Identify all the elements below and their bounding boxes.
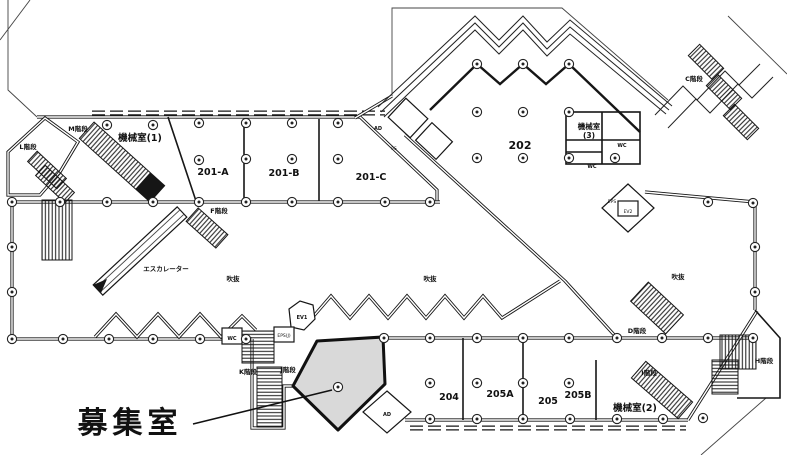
column-marker-dot <box>614 157 617 160</box>
stair-label-k: K階段 <box>239 367 258 376</box>
column-marker-dot <box>522 111 525 114</box>
column-marker-dot <box>569 418 572 421</box>
stair-label-i: I階段 <box>641 368 657 377</box>
column-marker-dot <box>152 338 155 341</box>
column-marker-dot <box>11 291 14 294</box>
atrium-label-1: 吹抜 <box>227 274 241 283</box>
column-marker-dot <box>568 382 571 385</box>
stair-l-lower-flight <box>42 200 72 260</box>
column-marker-dot <box>754 246 757 249</box>
floor-plan: 募集室 機械室(1) 201-A 201-B 201-C 202 機械室 (3)… <box>0 0 787 455</box>
wc-label-2: WC <box>587 164 597 170</box>
column-marker-dot <box>616 418 619 421</box>
column-marker-dot <box>702 417 705 420</box>
ps-label: PS <box>391 146 397 152</box>
column-marker-dot <box>62 338 65 341</box>
column-marker-dot <box>11 338 14 341</box>
column-marker-dot <box>291 201 294 204</box>
room-label-machine2: 機械室(2) <box>613 402 657 414</box>
room-label-204: 204 <box>439 392 459 403</box>
room-label-201a: 201-A <box>197 167 229 178</box>
column-marker-dot <box>476 382 479 385</box>
column-marker-dot <box>522 63 525 66</box>
column-marker-dot <box>245 158 248 161</box>
stair-label-m: M階段 <box>68 124 88 133</box>
room-label-machine3-num: (3) <box>583 131 595 140</box>
column-marker-dot <box>429 201 432 204</box>
column-marker-dot <box>429 337 432 340</box>
column-marker-dot <box>245 122 248 125</box>
column-marker-dot <box>752 202 755 205</box>
column-marker-dot <box>522 382 525 385</box>
column-marker-dot <box>707 337 710 340</box>
column-marker-dot <box>337 386 340 389</box>
ev2-label: EV2 <box>624 209 633 215</box>
column-marker-dot <box>245 338 248 341</box>
stair-label-l: L階段 <box>19 142 37 151</box>
column-marker-dot <box>662 418 665 421</box>
column-marker-dot <box>198 122 201 125</box>
room-label-201b: 201-B <box>268 168 299 179</box>
ev1-label: EV1 <box>297 315 308 321</box>
escalator <box>93 207 187 295</box>
escalator-label: エスカレーター <box>143 264 189 273</box>
column-marker-dot <box>384 201 387 204</box>
column-marker-dot <box>199 338 202 341</box>
column-marker-dot <box>522 157 525 160</box>
atrium-label-3: 吹抜 <box>672 272 686 281</box>
column-marker-dot <box>337 158 340 161</box>
fixtures <box>222 98 654 433</box>
column-marker-dot <box>59 201 62 204</box>
column-marker-dot <box>11 246 14 249</box>
highlight-room-callout-label: 募集室 <box>77 406 183 441</box>
column-marker-dot <box>476 337 479 340</box>
ad-label-bottom: AD <box>383 412 391 418</box>
column-marker-dot <box>383 337 386 340</box>
column-marker-dot <box>245 201 248 204</box>
column-marker-dot <box>152 201 155 204</box>
stair-label-j: J階段 <box>279 365 296 374</box>
column-marker-dot <box>198 159 201 162</box>
eps-label: EPS <box>608 199 617 205</box>
column-marker-dot <box>568 157 571 160</box>
column-marker-dot <box>429 382 432 385</box>
column-marker-dot <box>108 338 111 341</box>
atrium-label-2: 吹抜 <box>424 274 438 283</box>
column-marker-dot <box>476 157 479 160</box>
room-label-201c: 201-C <box>356 172 387 183</box>
column-marker-dot <box>198 201 201 204</box>
room-label-machine1: 機械室(1) <box>118 132 162 144</box>
column-marker-dot <box>291 158 294 161</box>
eps-j-label: EPS(J) <box>277 333 290 339</box>
column-marker-dot <box>522 337 525 340</box>
wc-label-1: WC <box>617 143 627 149</box>
wc-label-3: WC <box>227 336 237 342</box>
room-label-202: 202 <box>509 139 532 152</box>
column-marker-dot <box>568 111 571 114</box>
column-marker-dot <box>616 337 619 340</box>
column-marker-dot <box>291 122 294 125</box>
room-label-205b: 205B <box>564 390 591 401</box>
ad-label-top: AD <box>374 126 382 132</box>
column-marker-dot <box>337 122 340 125</box>
floor-plan-page: 募集室 機械室(1) 201-A 201-B 201-C 202 機械室 (3)… <box>0 0 787 455</box>
column-marker-dot <box>568 337 571 340</box>
column-marker-dot <box>754 291 757 294</box>
room-label-205: 205 <box>538 396 558 407</box>
ps-shaft <box>416 123 453 160</box>
column-marker-dot <box>522 418 525 421</box>
column-marker-dot <box>106 124 109 127</box>
stair-label-h: H階段 <box>755 356 774 365</box>
room-label-machine3: 機械室 <box>578 121 601 131</box>
column-marker-dot <box>337 201 340 204</box>
column-marker-dot <box>568 63 571 66</box>
stair-label-f: F階段 <box>210 206 228 215</box>
ad-shaft-top <box>388 98 428 137</box>
column-marker-dot <box>661 337 664 340</box>
column-marker-dot <box>11 201 14 204</box>
stair-label-d: D階段 <box>628 326 647 335</box>
stair-j-flight <box>257 367 282 427</box>
column-marker-dot <box>106 201 109 204</box>
stair-label-c: C階段 <box>685 74 703 83</box>
column-marker-dot <box>152 124 155 127</box>
column-marker-dot <box>476 63 479 66</box>
column-marker-dot <box>476 111 479 114</box>
column-marker-dot <box>707 201 710 204</box>
room-label-205a: 205A <box>486 389 514 400</box>
column-marker-dot <box>752 337 755 340</box>
column-marker-dot <box>429 418 432 421</box>
column-marker-dot <box>476 418 479 421</box>
